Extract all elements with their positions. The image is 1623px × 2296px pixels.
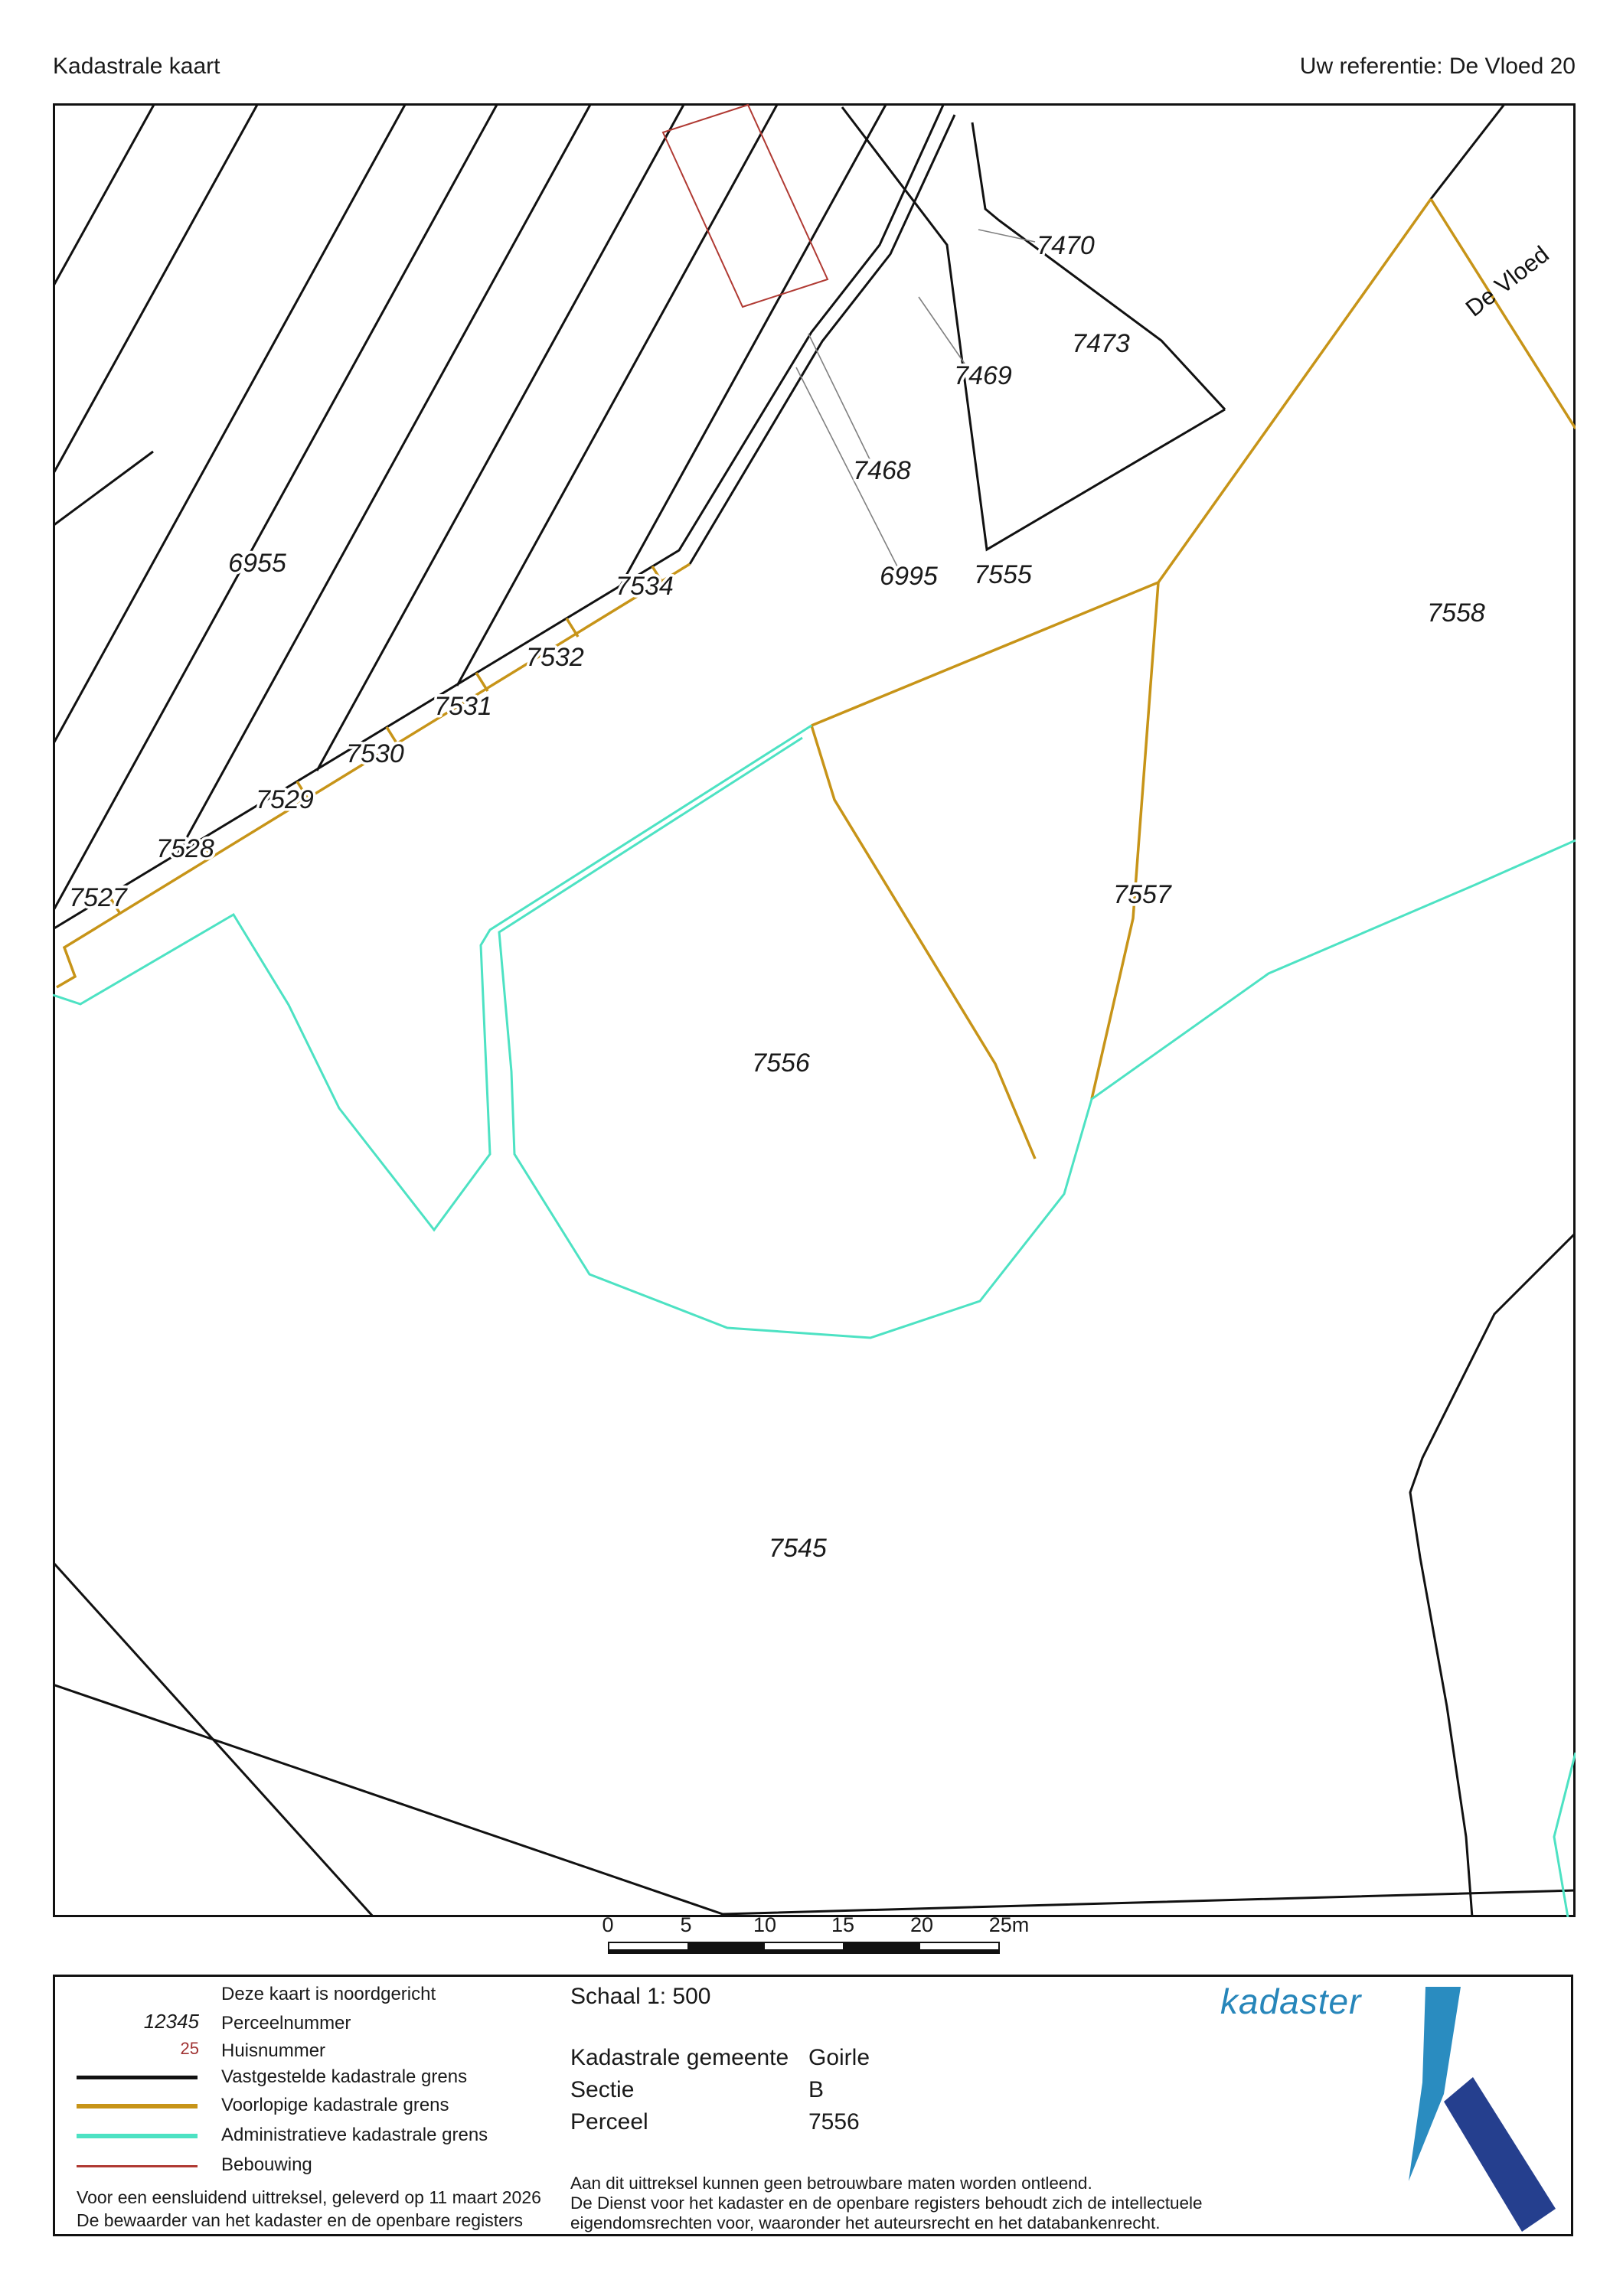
bottom-right-curve-boundary	[1410, 1233, 1576, 1917]
street-label: De Vloed	[1461, 240, 1554, 321]
strip-connector	[53, 452, 153, 526]
parcel-label-6955: 6955	[228, 549, 286, 578]
established-boundaries	[53, 103, 1576, 1917]
parcel-label-7473: 7473	[1072, 329, 1130, 358]
parcel-label-7527: 7527	[69, 883, 128, 912]
municipality-value: Goirle	[808, 2045, 870, 2071]
admin-boundary-corner	[1554, 1753, 1576, 1917]
parcel-label-7529: 7529	[256, 785, 314, 814]
kadaster-logo-text: kadaster	[1220, 1981, 1361, 2022]
disclaimer-line1: Aan dit uittreksel kunnen geen betrouwba…	[570, 2174, 1092, 2193]
parcel-label-7545: 7545	[769, 1534, 827, 1563]
scalebar-tick-10: 10	[753, 1913, 776, 1937]
gold-tick	[476, 673, 488, 691]
parcel-7556-7557-boundary	[811, 726, 1035, 1159]
issued-note-line2: De bewaarder van het kadaster en de open…	[77, 2210, 523, 2231]
parcel-label-6995: 6995	[880, 562, 938, 591]
parcel-label-7531: 7531	[434, 692, 492, 721]
disclaimer-line2: De Dienst voor het kadaster en de openba…	[570, 2193, 1203, 2213]
parcel-label-7469: 7469	[954, 361, 1012, 390]
parcel-label-7534: 7534	[616, 572, 674, 601]
scale-bar-segment	[765, 1943, 843, 1949]
scalebar-tick-25m: 25m	[989, 1913, 1030, 1937]
topright-boundary	[1431, 103, 1505, 199]
strip-line	[53, 103, 155, 287]
leader-7470	[978, 230, 1035, 242]
scale-bar-segments	[609, 1943, 998, 1949]
house-number-sample: 25	[77, 2039, 199, 2059]
provisional-line-sample	[77, 2104, 198, 2108]
scalebar-tick-0: 0	[602, 1913, 613, 1937]
leader-7468	[808, 334, 870, 459]
parcel-number-label: Perceelnummer	[221, 2013, 351, 2034]
parcel-label-7530: 7530	[346, 739, 404, 768]
established-line-label: Vastgestelde kadastrale grens	[221, 2066, 467, 2088]
parcel-7557-7558-boundary	[1092, 582, 1158, 1099]
parcel-field-label: Perceel	[570, 2109, 648, 2135]
gold-tick	[567, 618, 578, 637]
admin-boundary-arc	[499, 738, 1576, 1338]
gold-strip-boundary	[57, 564, 690, 987]
parcel-label-7558: 7558	[1427, 598, 1485, 628]
scale-bar-segment	[687, 1943, 766, 1949]
municipality-label: Kadastrale gemeente	[570, 2045, 789, 2071]
parcel-label-7557: 7557	[1113, 880, 1172, 909]
strip-line	[53, 103, 406, 745]
section-label: Sectie	[570, 2077, 634, 2103]
scalebar-tick-15: 15	[831, 1913, 854, 1937]
scalebar-tick-5: 5	[680, 1913, 691, 1937]
parcel-label-7470: 7470	[1037, 231, 1095, 260]
building-line-sample	[77, 2165, 198, 2167]
scale-bar-base	[609, 1949, 998, 1952]
strip-line	[619, 103, 887, 588]
building-line-label: Bebouwing	[221, 2154, 312, 2176]
parcel-field-value: 7556	[808, 2109, 860, 2135]
de-vloed-side-boundary	[1431, 199, 1576, 429]
scale-bar-segment	[920, 1943, 998, 1949]
parcel-label-7555: 7555	[974, 560, 1032, 589]
scalebar-tick-20: 20	[910, 1913, 933, 1937]
admin-boundary-west	[53, 726, 811, 1230]
scale-bar-segment	[843, 1943, 921, 1949]
page-title: Kadastrale kaart	[53, 54, 220, 80]
road-edge-left	[53, 103, 944, 929]
building-outline	[663, 105, 828, 307]
map-border	[54, 105, 1575, 1916]
logo-blade-light	[1409, 1987, 1461, 2181]
bottom-long-boundary	[53, 1684, 1576, 1914]
section-value: B	[808, 2077, 824, 2103]
scale-bar	[608, 1942, 1000, 1954]
parcel-label-7532: 7532	[526, 643, 584, 672]
house-number-label: Huisnummer	[221, 2040, 325, 2062]
north-note: Deze kaart is noordgericht	[221, 1984, 436, 2005]
strip-line	[317, 103, 684, 771]
kadaster-logo-mark	[1393, 1979, 1577, 2233]
parcel-label-7528: 7528	[156, 834, 214, 863]
established-line-sample	[77, 2076, 198, 2079]
provisional-boundaries	[57, 199, 1576, 1159]
administrative-line-sample	[77, 2134, 198, 2138]
cadastral-map-page: Kadastrale kaart Uw referentie: De Vloed…	[0, 0, 1623, 2296]
parcel-number-sample: 12345	[77, 2010, 199, 2033]
parcel-label-7556: 7556	[752, 1049, 810, 1078]
parcel-label-7468: 7468	[853, 456, 911, 485]
administrative-line-label: Administratieve kadastrale grens	[221, 2125, 488, 2146]
administrative-boundaries	[53, 726, 1576, 1917]
map-canvas: 6955 7534 7532 7531 7530 7529 7528 7527 …	[53, 103, 1576, 1917]
issued-note-line1: Voor een eensluidend uittreksel, gelever…	[77, 2187, 541, 2208]
road-edge-right	[690, 115, 955, 564]
reference-label: Uw referentie: De Vloed 20	[1300, 54, 1576, 80]
scale-label: Schaal 1: 500	[570, 1984, 710, 2010]
provisional-line-label: Voorlopige kadastrale grens	[221, 2095, 449, 2116]
strip-line	[53, 103, 258, 475]
disclaimer-line3: eigendomsrechten voor, waaronder het aut…	[570, 2213, 1161, 2233]
logo-blade-dark	[1444, 2077, 1556, 2232]
scale-bar-segment	[609, 1943, 687, 1949]
label-leaders	[796, 230, 1035, 566]
